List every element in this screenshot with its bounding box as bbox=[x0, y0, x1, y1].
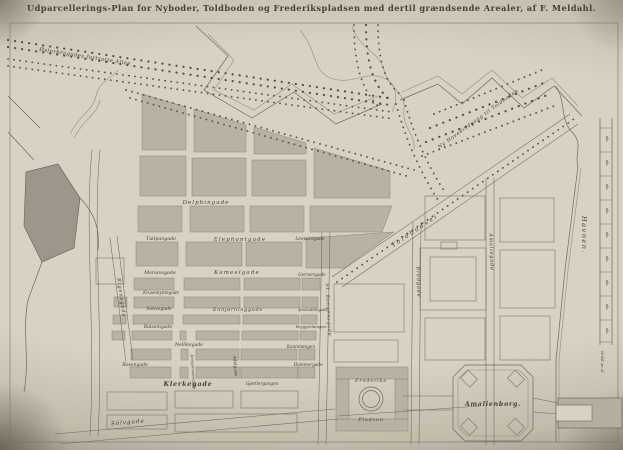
svg-text:ale.: ale. bbox=[605, 208, 609, 214]
svg-text:ale.: ale. bbox=[605, 136, 609, 142]
svg-text:ale.: ale. bbox=[605, 184, 609, 190]
label-osterbro-allee: Østerbrogades fortsatte Allee bbox=[38, 46, 131, 68]
label-kameelgade: Kameelgade bbox=[213, 270, 260, 276]
label-salviegade: Salviegade bbox=[146, 306, 172, 312]
svg-text:ale.: ale. bbox=[605, 328, 609, 334]
map-canvas: Frederiks Pladsen Amalienborg. bbox=[0, 0, 623, 450]
label-ny-hovedindgang: Ny Hovedindgang til Toldboden bbox=[436, 88, 520, 151]
label-toldbodvei: Toldbodvei bbox=[390, 212, 440, 249]
marble-church-inner bbox=[363, 391, 380, 408]
label-solvgade: Sölvgade bbox=[111, 419, 145, 428]
label-elephantgade: Elephantgade bbox=[213, 237, 266, 243]
solvgade-road bbox=[55, 409, 335, 434]
label-havnen: Havnen. bbox=[580, 215, 588, 254]
west-rampart bbox=[8, 70, 118, 392]
label-rosengade: Rosengade bbox=[121, 362, 148, 368]
label-balsamgade: Balsamgade bbox=[143, 324, 173, 330]
frederiks-hospital bbox=[420, 242, 486, 310]
svg-text:ale.: ale. bbox=[605, 280, 609, 286]
label-delphingade: Delphingade bbox=[182, 200, 230, 206]
harbor: ale. ale. ale. ale. ale. ale. ale. ale. … bbox=[556, 118, 622, 442]
bastion bbox=[24, 164, 80, 262]
svg-text:ale.: ale. bbox=[605, 304, 609, 310]
label-meriansgade: Meriansgade bbox=[143, 270, 176, 276]
frederiksgade-road bbox=[403, 396, 453, 410]
frederiks-pladsen: Frederiks Pladsen bbox=[336, 367, 408, 431]
voldgade-road bbox=[89, 150, 100, 436]
quay-tick-labels: ale. ale. ale. ale. ale. ale. ale. ale. … bbox=[605, 136, 609, 334]
label-enhjorninggade: Enhjørninggade bbox=[212, 307, 263, 313]
label-pladsen: Pladsen bbox=[357, 417, 384, 423]
label-leopardgade: Leopardgade bbox=[294, 237, 325, 242]
label-amalienborg: Amalienborg. bbox=[464, 401, 521, 408]
label-krokodillegade: Krokodillegade bbox=[297, 307, 328, 312]
label-klerkegade: Klerkegade bbox=[162, 380, 212, 388]
nyboder-blocks bbox=[112, 94, 394, 378]
pier-notch bbox=[556, 405, 592, 421]
label-krusemyntegade: Krusemyntegade bbox=[142, 290, 180, 295]
label-bryggerlaengen: Bryggerlængen bbox=[295, 324, 327, 329]
svg-text:ale.: ale. bbox=[605, 160, 609, 166]
map-frame bbox=[10, 23, 618, 442]
label-kaninlaengen: Kaninlængen bbox=[286, 344, 315, 349]
amalienborg-plaza: Amalienborg. bbox=[453, 365, 533, 441]
label-frederiks: Frederiks bbox=[354, 378, 387, 384]
label-hummergade: Hummergade bbox=[292, 362, 323, 367]
label-gjortlergangen: Gjørtlergangen bbox=[246, 381, 279, 386]
map-sheet: Udparcellerings-Plan for Nyboder, Toldbo… bbox=[0, 0, 623, 450]
bredgade-road bbox=[411, 222, 421, 445]
label-price-note: 60 Rdl. pr. Al. bbox=[600, 351, 604, 373]
label-bredgade: Bredgade bbox=[414, 265, 421, 297]
label-amaliegade: Amaliegade bbox=[487, 232, 494, 271]
svg-text:ale.: ale. bbox=[605, 256, 609, 262]
svg-text:ale.: ale. bbox=[605, 232, 609, 238]
label-gernersgade: Gernersgade bbox=[298, 272, 326, 277]
label-tulipangade: Tulipangade bbox=[146, 236, 176, 242]
label-nellikegade: Nellikegade bbox=[174, 342, 203, 348]
